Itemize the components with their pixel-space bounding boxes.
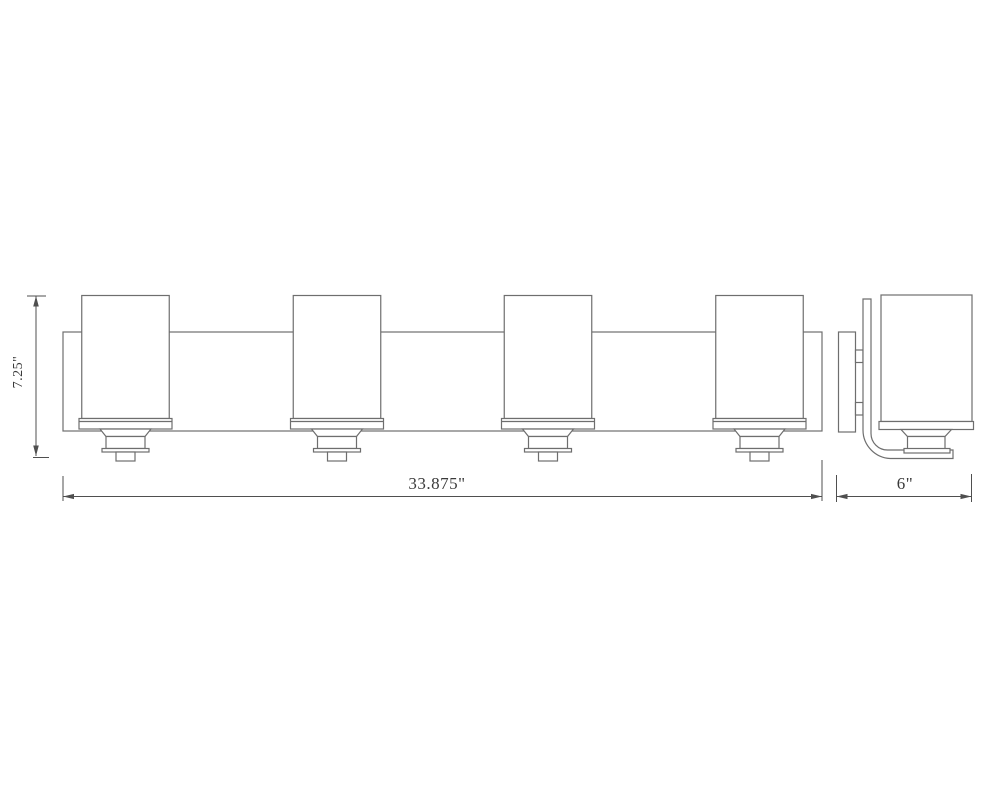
height-arrow-down [33, 446, 39, 457]
front-view [63, 296, 822, 462]
side-view [839, 295, 974, 459]
height-dimension: 7.25" [11, 296, 49, 458]
light-unit-3 [502, 296, 595, 462]
shade-rim-side [879, 422, 974, 430]
mounting-tab-1 [856, 350, 864, 363]
depth-arrow-left [837, 494, 848, 499]
depth-label: 6" [897, 474, 913, 493]
holder-neck-side [901, 430, 952, 437]
technical-drawing: 7.25" 33.875" 6" [0, 0, 1000, 800]
light-unit-2 [291, 296, 384, 462]
width-arrow-left [63, 494, 74, 499]
depth-arrow-right [961, 494, 972, 499]
width-label: 33.875" [408, 474, 465, 493]
page: 7.25" 33.875" 6" [0, 0, 1000, 800]
width-dimension: 33.875" [63, 460, 822, 501]
width-arrow-right [811, 494, 822, 499]
mounting-tab-2 [856, 403, 864, 416]
light-unit-4 [713, 296, 806, 462]
wall-plate [839, 332, 856, 432]
height-label: 7.25" [11, 356, 26, 389]
backplate [63, 332, 822, 431]
light-unit-1 [79, 296, 172, 462]
shade-glass-side [881, 295, 972, 422]
height-arrow-up [33, 296, 39, 307]
depth-dimension: 6" [837, 474, 972, 502]
holder-flange-side [904, 449, 950, 454]
